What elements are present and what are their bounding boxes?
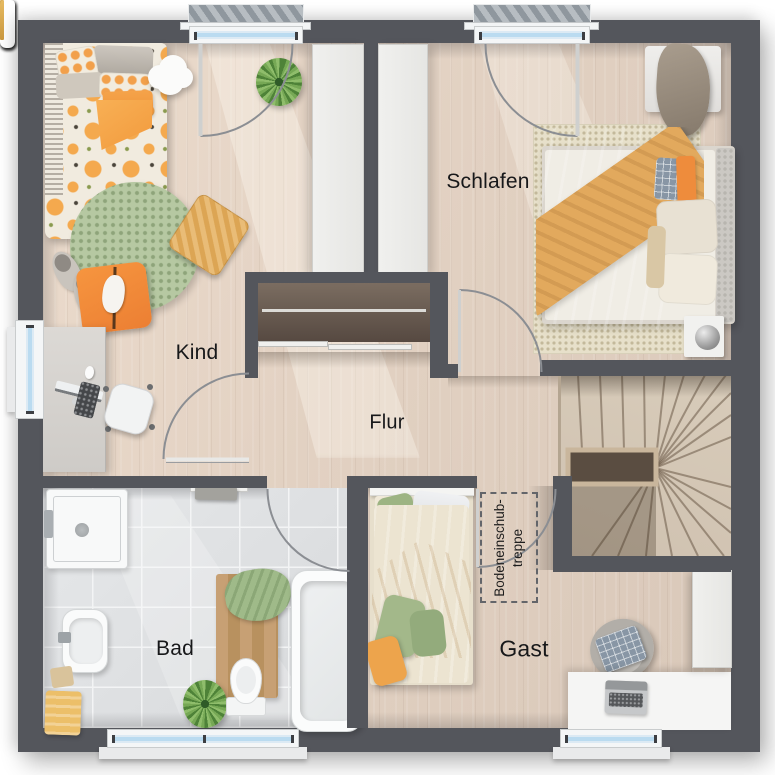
- awning-kind: [188, 4, 304, 24]
- stair-underpass-shadow: [568, 484, 656, 556]
- room-label-bad: Bad: [156, 637, 194, 661]
- window-tick: [291, 735, 294, 743]
- closet-door-track: [258, 341, 328, 347]
- sink-basin: [69, 618, 103, 664]
- wall-kind-schlafen: [364, 43, 378, 274]
- awning-schlafen: [473, 4, 591, 24]
- closet-rail: [262, 309, 426, 312]
- laptop-keys: [609, 692, 643, 707]
- schlafen-pillow-tan: [646, 226, 666, 289]
- plant-kind: [256, 58, 302, 106]
- chair-caster: [149, 424, 155, 430]
- window-tick: [26, 411, 34, 414]
- shower-tray: [46, 489, 128, 569]
- window-tick: [295, 32, 298, 40]
- stairwell-opening-rail: [568, 450, 656, 484]
- window-tick: [565, 735, 568, 743]
- floorplan-canvas: Bodeneinschub- treppe Kind Schlafen Flur…: [0, 0, 775, 775]
- closet-door-track: [328, 344, 412, 350]
- staircase-treads: [558, 375, 731, 556]
- desk-chair: [101, 380, 157, 440]
- room-label-gast: Gast: [499, 636, 548, 663]
- window-tick: [26, 325, 34, 328]
- laptop-screen: [605, 680, 647, 690]
- towel-gray: [195, 487, 237, 501]
- gast-pillow-green-small: [409, 608, 448, 657]
- shower-drain: [75, 523, 89, 537]
- kind-wardrobe: [312, 44, 364, 273]
- schlafen-headboard: [716, 148, 735, 322]
- wall-kind-flur: [245, 272, 258, 378]
- window-tick: [203, 735, 206, 743]
- cloud-decor: [148, 55, 194, 97]
- window-schlafen-top: [474, 26, 590, 44]
- sphere-lamp: [695, 325, 720, 350]
- toilet-seat: [236, 666, 256, 694]
- kind-pillow-toy: [75, 261, 153, 335]
- toy-fox: [100, 274, 126, 314]
- window-tick: [582, 32, 585, 40]
- wall-gast-top: [368, 476, 477, 488]
- toilet: [226, 658, 266, 716]
- towel-yellow: [44, 690, 82, 735]
- window-kind-top: [189, 26, 303, 44]
- attic-hatch-label-line1: Bodeneinschub-: [491, 499, 509, 597]
- closet-garment: [0, 0, 15, 48]
- chair-caster: [103, 386, 109, 392]
- shower-fitting: [44, 510, 53, 538]
- cloud-part: [157, 73, 183, 95]
- window-glass: [26, 326, 34, 413]
- wall-stair-bottom: [553, 556, 731, 572]
- wall-closet-foot: [430, 364, 458, 378]
- wall-schlafen-bottom: [540, 360, 731, 376]
- closet-interior: [258, 283, 430, 342]
- kind-pillow-bear: [55, 72, 104, 99]
- cloth-tan: [50, 666, 75, 689]
- window-glass: [566, 735, 656, 743]
- attic-hatch-outline: Bodeneinschub- treppe: [480, 492, 538, 603]
- window-glass: [480, 31, 584, 39]
- window-bad-bottom: [107, 729, 299, 748]
- window-tick: [654, 735, 657, 743]
- window-tick: [112, 735, 115, 743]
- wall-bad-top: [43, 476, 267, 488]
- window-sill-bad: [99, 747, 307, 759]
- chair-caster: [147, 384, 153, 390]
- window-tick: [479, 32, 482, 40]
- staircase: [558, 375, 731, 556]
- wall-bad-gast: [347, 476, 368, 728]
- stair-top-shadow: [558, 375, 731, 397]
- gast-wardrobe: [692, 570, 732, 668]
- schlafen-wardrobe: [378, 44, 428, 273]
- schlafen-pillow-beige: [658, 253, 719, 306]
- attic-hatch-label: Bodeneinschub- treppe: [491, 499, 527, 597]
- room-label-schlafen: Schlafen: [446, 170, 529, 194]
- room-label-flur: Flur: [369, 412, 404, 435]
- window-glass: [195, 31, 297, 39]
- window-sill-gast: [553, 747, 670, 759]
- window-gast-bottom: [560, 729, 662, 748]
- window-sill-left: [7, 327, 15, 412]
- window-kind-left: [15, 320, 44, 419]
- window-tick: [194, 32, 197, 40]
- room-label-kind: Kind: [176, 341, 219, 365]
- sink-faucet: [58, 632, 71, 643]
- laptop: [604, 680, 647, 714]
- wall-closet-top: [247, 272, 448, 283]
- attic-hatch-label-line2: treppe: [509, 499, 527, 597]
- gast-desk: [568, 672, 731, 730]
- wall-closet-right: [430, 274, 448, 378]
- plant-bad: [183, 680, 227, 728]
